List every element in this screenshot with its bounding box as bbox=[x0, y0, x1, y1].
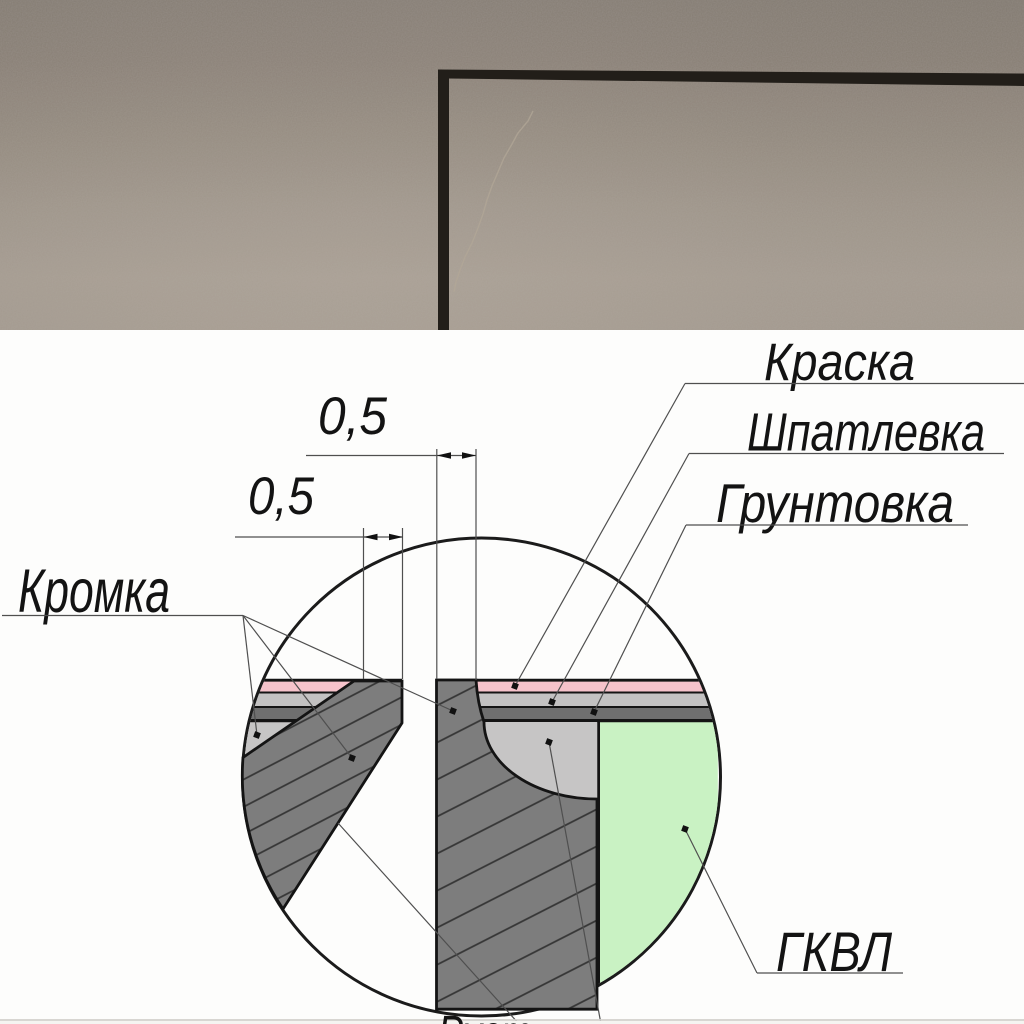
svg-text:Руст: Руст bbox=[438, 1007, 532, 1024]
svg-text:0,5: 0,5 bbox=[248, 467, 314, 526]
svg-text:Кромка: Кромка bbox=[18, 557, 170, 625]
svg-text:0,5: 0,5 bbox=[318, 387, 387, 446]
